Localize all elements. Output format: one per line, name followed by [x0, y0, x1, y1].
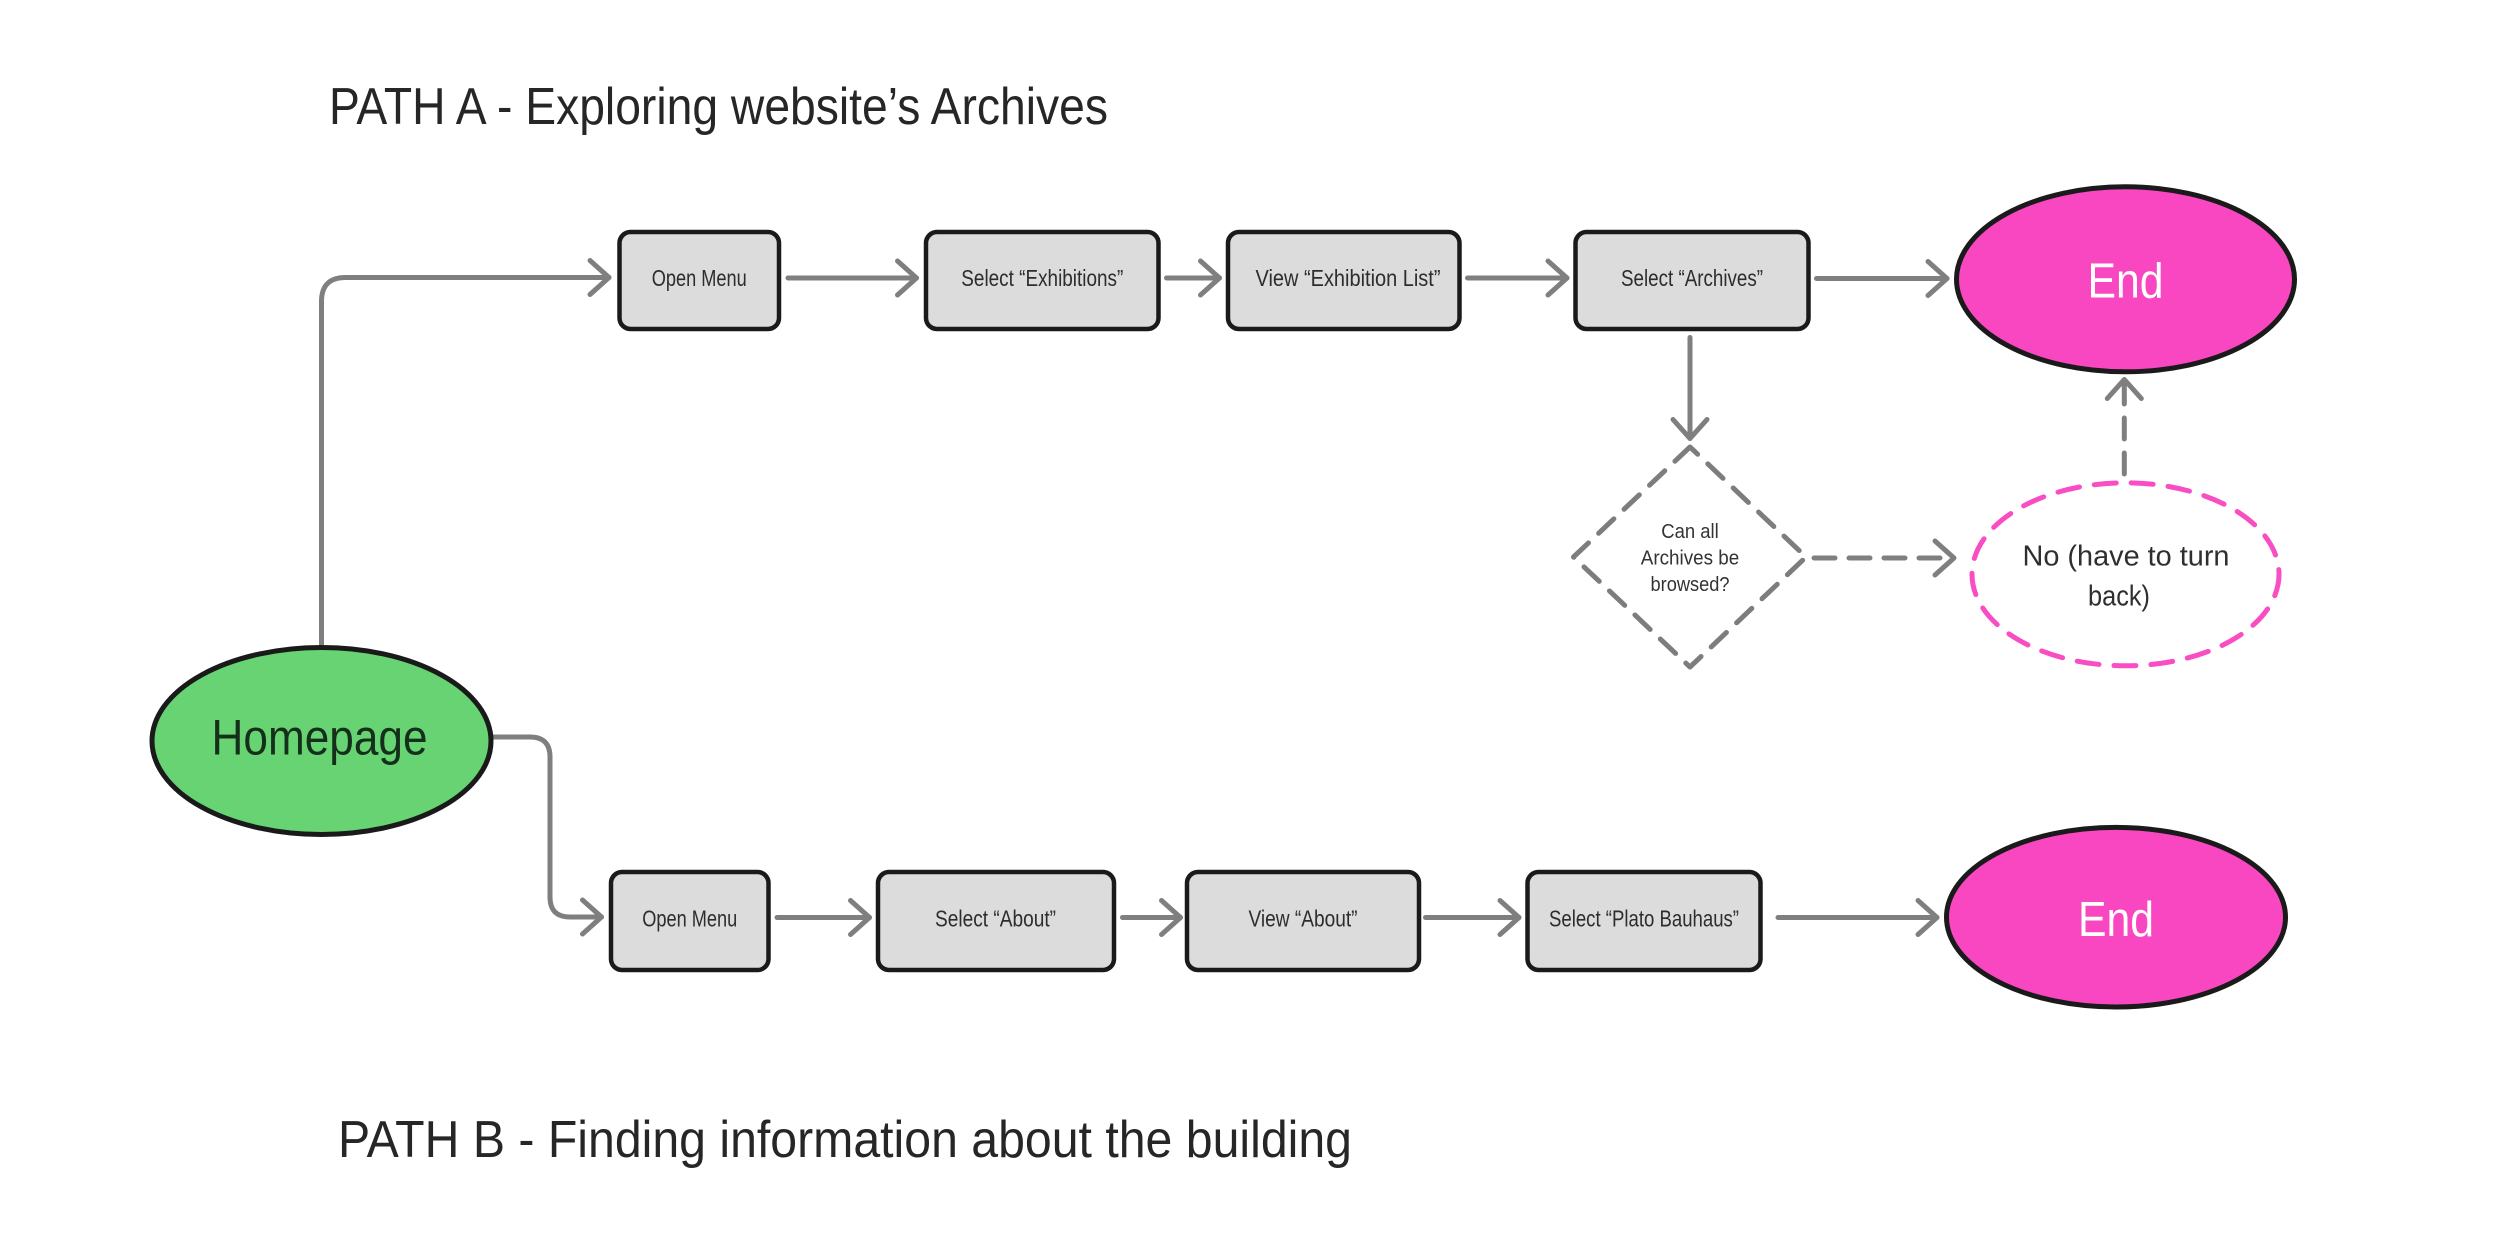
svg-text:Can all: Can all [1661, 521, 1719, 543]
svg-text:Select “Archives”: Select “Archives” [1621, 265, 1763, 291]
svg-text:View “Exhibition List”: View “Exhibition List” [1256, 265, 1441, 291]
svg-text:Archives be: Archives be [1641, 547, 1740, 569]
svg-text:browsed?: browsed? [1651, 574, 1730, 596]
svg-text:PATH B - Finding information a: PATH B - Finding information about the b… [338, 1111, 1352, 1169]
svg-text:Select “Plato Bauhaus”: Select “Plato Bauhaus” [1549, 906, 1739, 932]
svg-text:End: End [2088, 255, 2164, 309]
svg-text:Open Menu: Open Menu [642, 906, 737, 932]
svg-text:PATH A - Exploring website’s A: PATH A - Exploring website’s Archives [329, 78, 1108, 136]
svg-text:back): back) [2088, 581, 2150, 613]
svg-text:Select “Exhibitions”: Select “Exhibitions” [961, 265, 1123, 291]
svg-text:No (have to turn: No (have to turn [2023, 541, 2230, 573]
svg-text:Open Menu: Open Menu [652, 265, 747, 291]
svg-text:Homepage: Homepage [212, 710, 428, 766]
svg-text:View “About”: View “About” [1249, 906, 1358, 932]
svg-text:Select “About”: Select “About” [935, 906, 1056, 932]
svg-text:End: End [2078, 893, 2154, 947]
